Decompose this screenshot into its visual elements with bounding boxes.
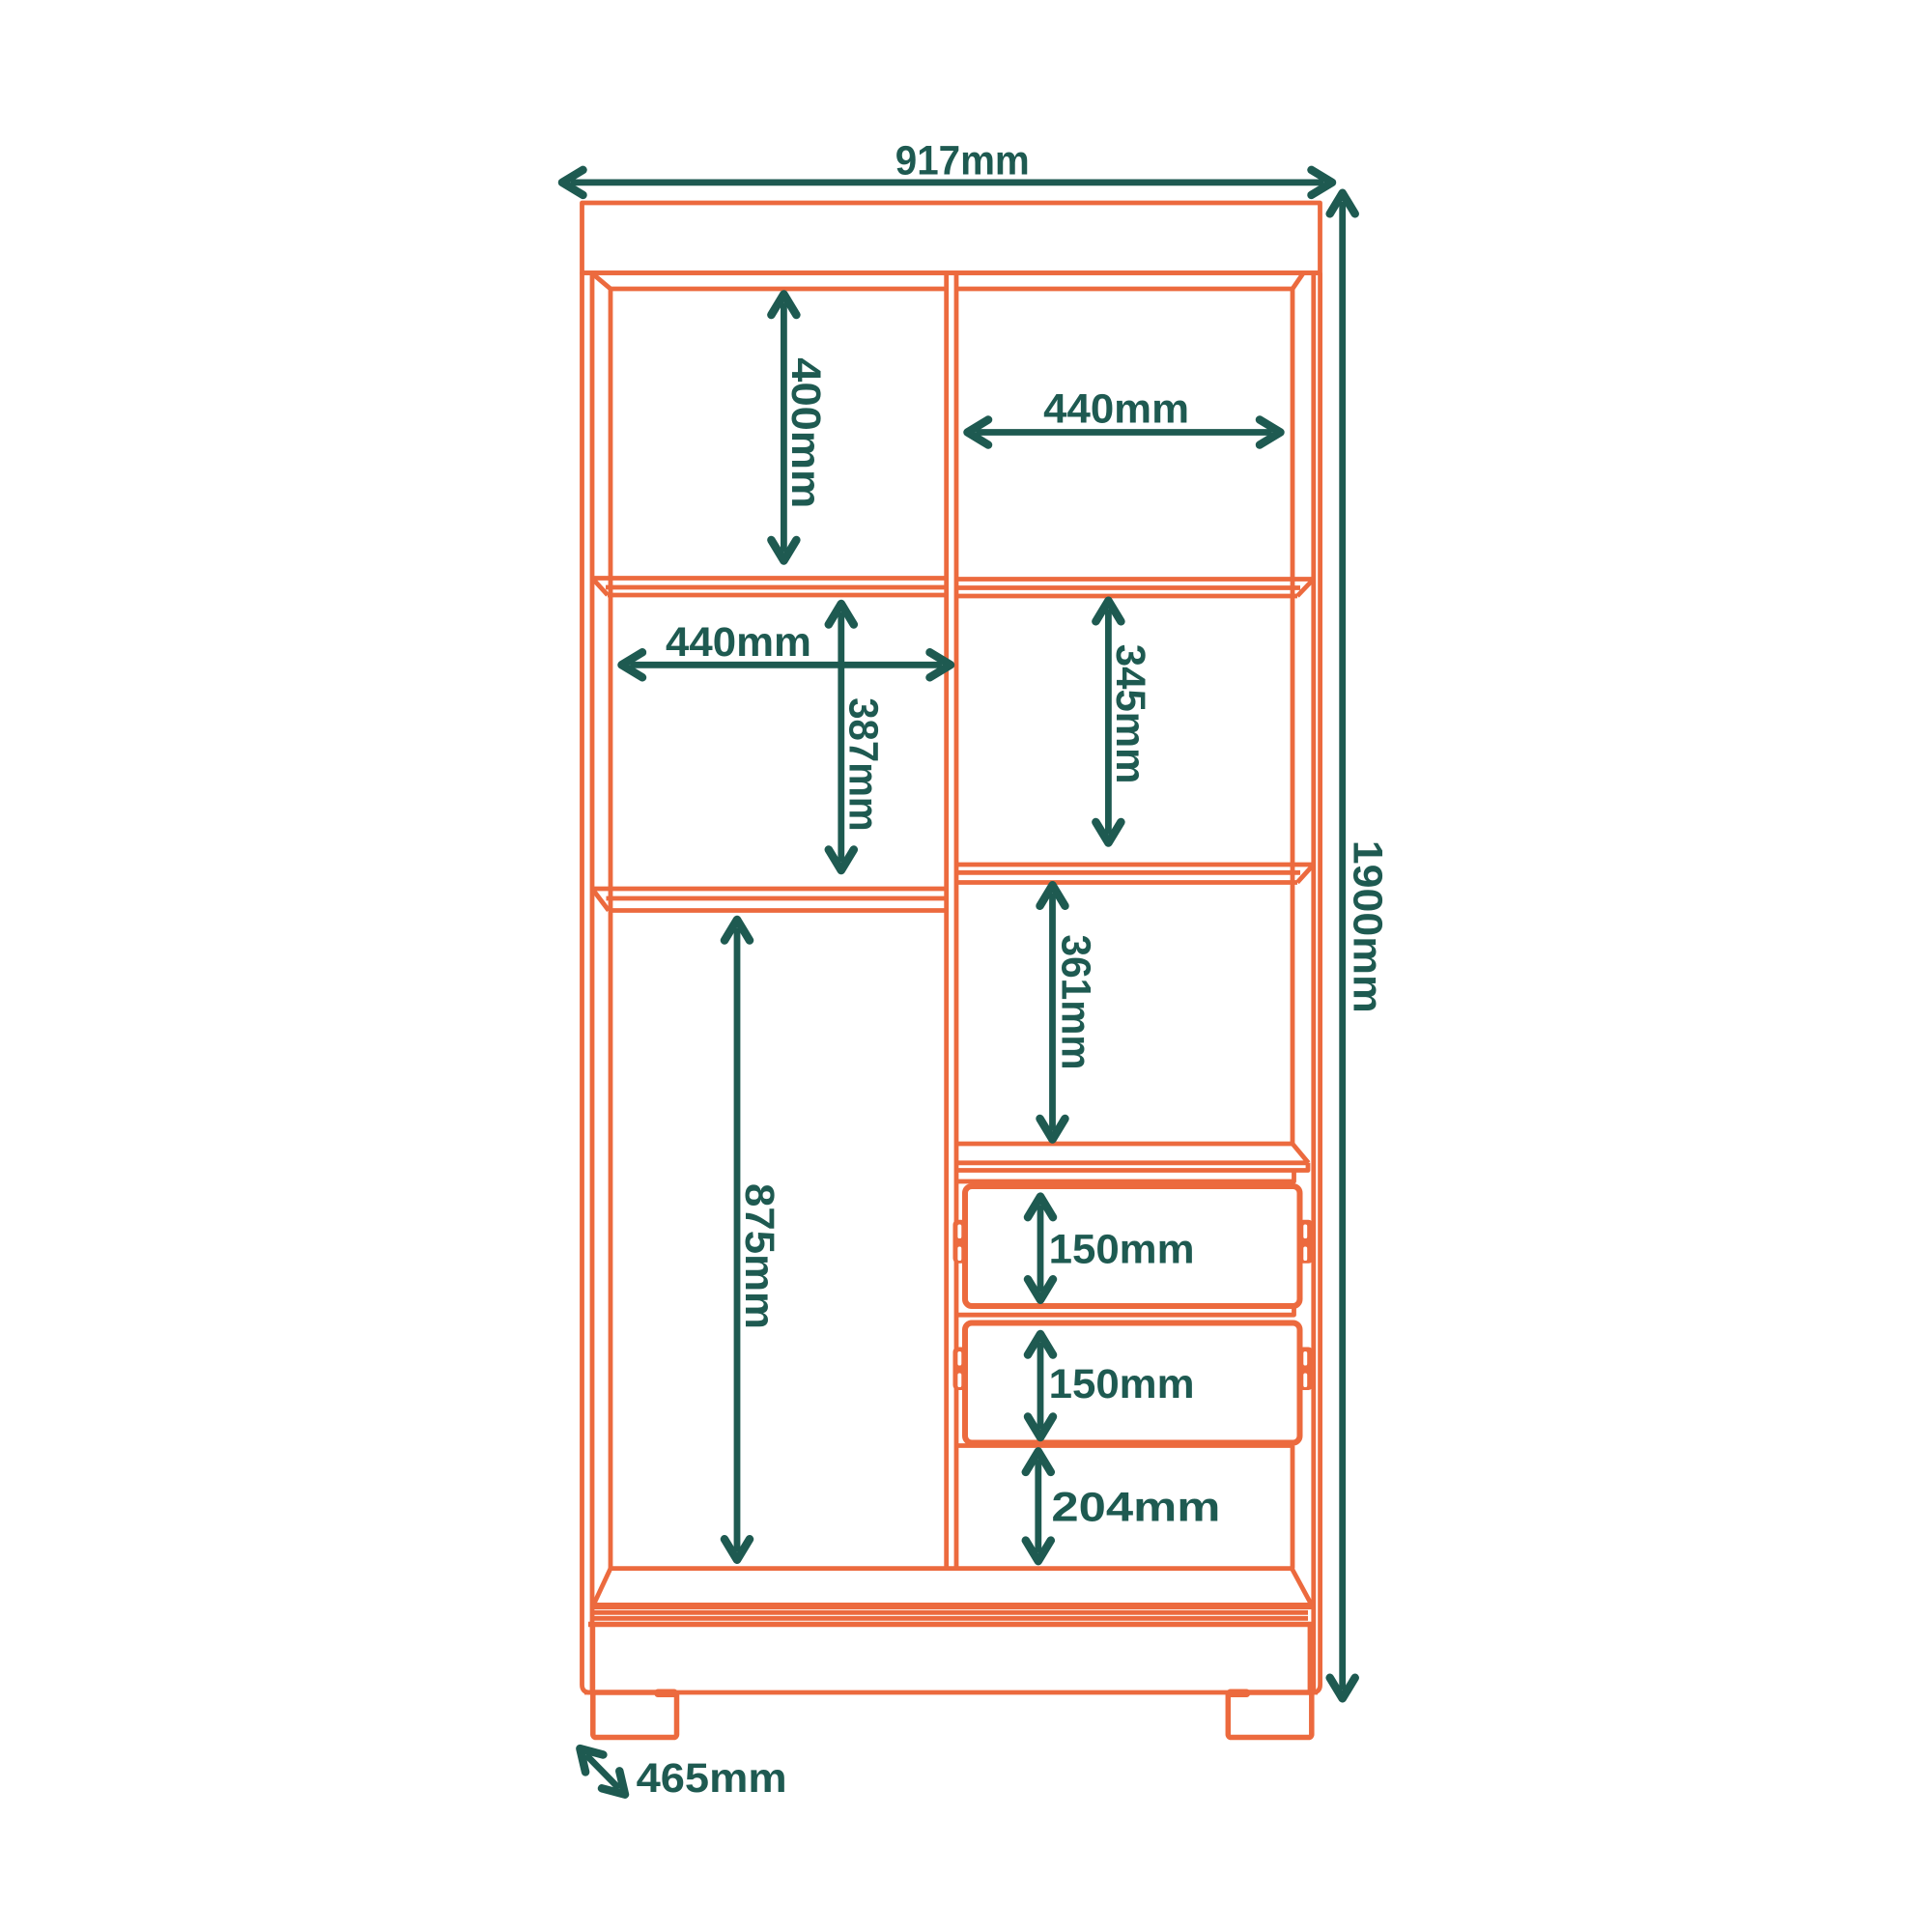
svg-text:150mm: 150mm [1049,1227,1195,1273]
svg-text:440mm: 440mm [1043,385,1189,432]
svg-text:345mm: 345mm [1107,644,1153,784]
svg-text:204mm: 204mm [1051,1485,1220,1531]
svg-text:917mm: 917mm [895,137,1030,184]
svg-text:1900mm: 1900mm [1345,840,1391,1013]
svg-text:387mm: 387mm [839,697,886,831]
svg-text:361mm: 361mm [1053,935,1099,1070]
svg-text:875mm: 875mm [736,1183,782,1329]
svg-text:150mm: 150mm [1049,1361,1195,1407]
svg-text:400mm: 400mm [782,357,829,508]
svg-text:465mm: 465mm [637,1755,787,1802]
svg-text:440mm: 440mm [666,619,811,666]
